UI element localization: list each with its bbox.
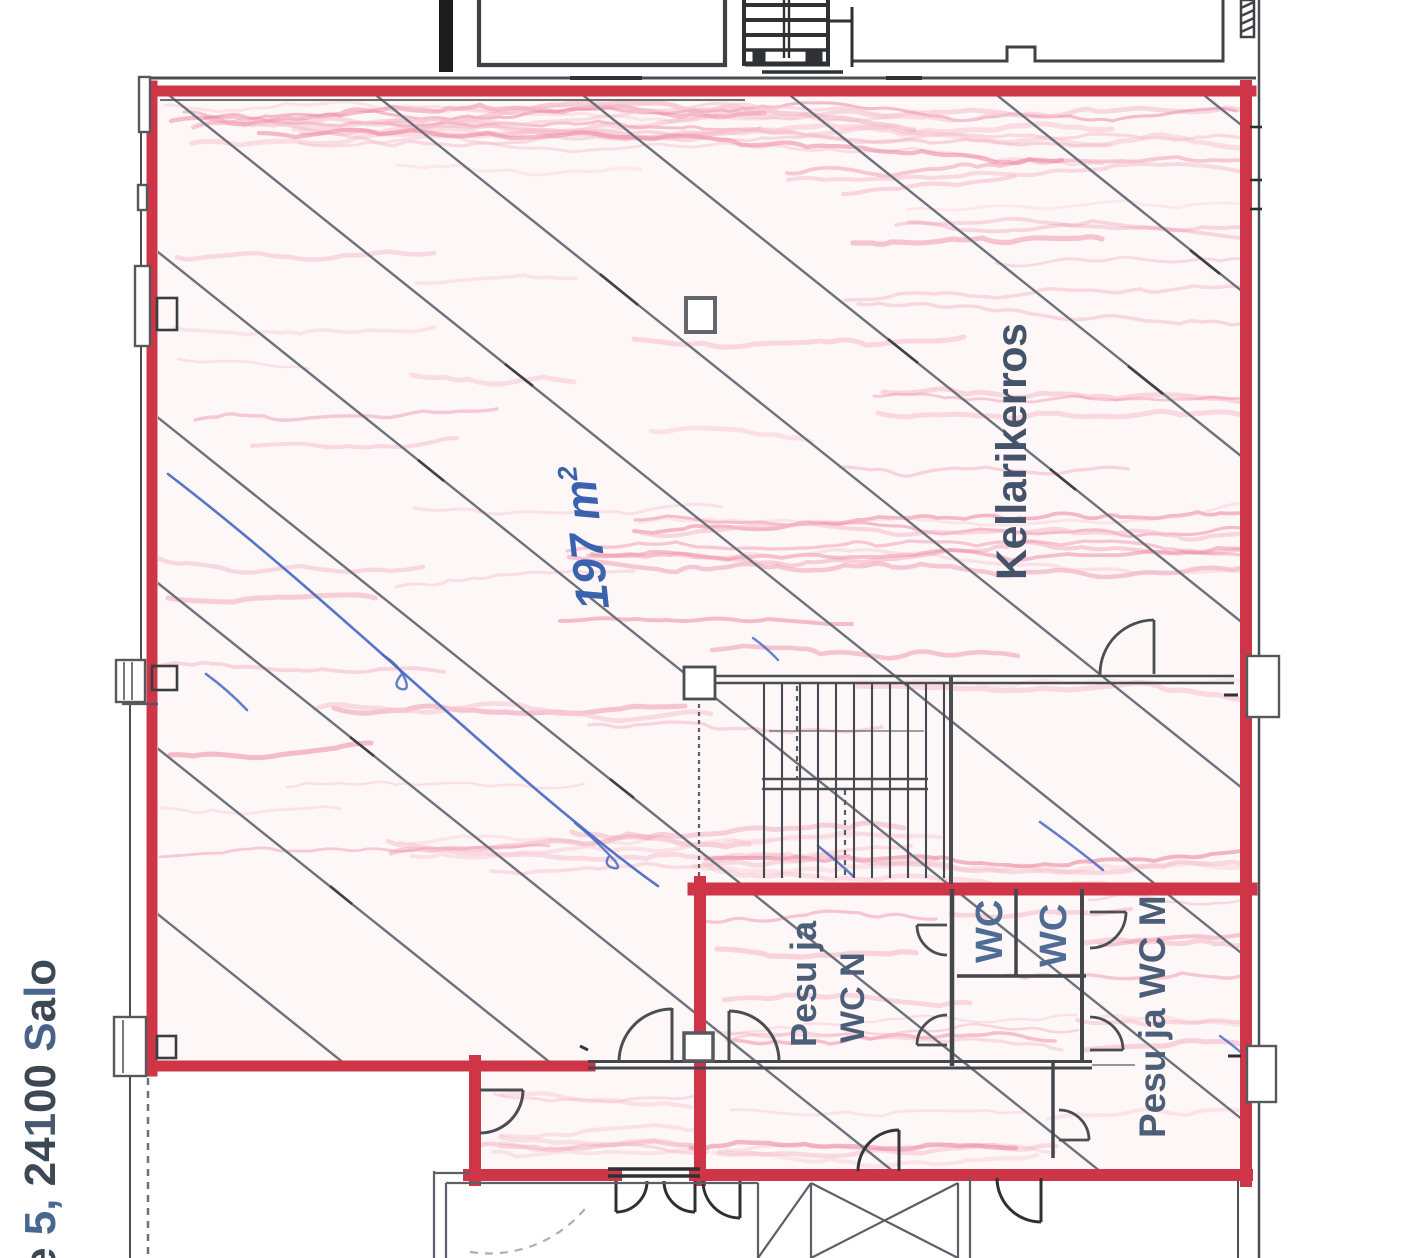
- svg-text:e 5, 24100 Salo: e 5, 24100 Salo: [16, 959, 65, 1258]
- svg-text:WC N: WC N: [834, 952, 872, 1043]
- svg-text:Kellarikerros: Kellarikerros: [988, 324, 1036, 580]
- svg-text:Pesu ja: Pesu ja: [783, 920, 824, 1047]
- svg-text:WC: WC: [969, 900, 1011, 963]
- svg-text:WC: WC: [1033, 904, 1075, 967]
- svg-text:Pesu ja WC M: Pesu ja WC M: [1132, 895, 1173, 1138]
